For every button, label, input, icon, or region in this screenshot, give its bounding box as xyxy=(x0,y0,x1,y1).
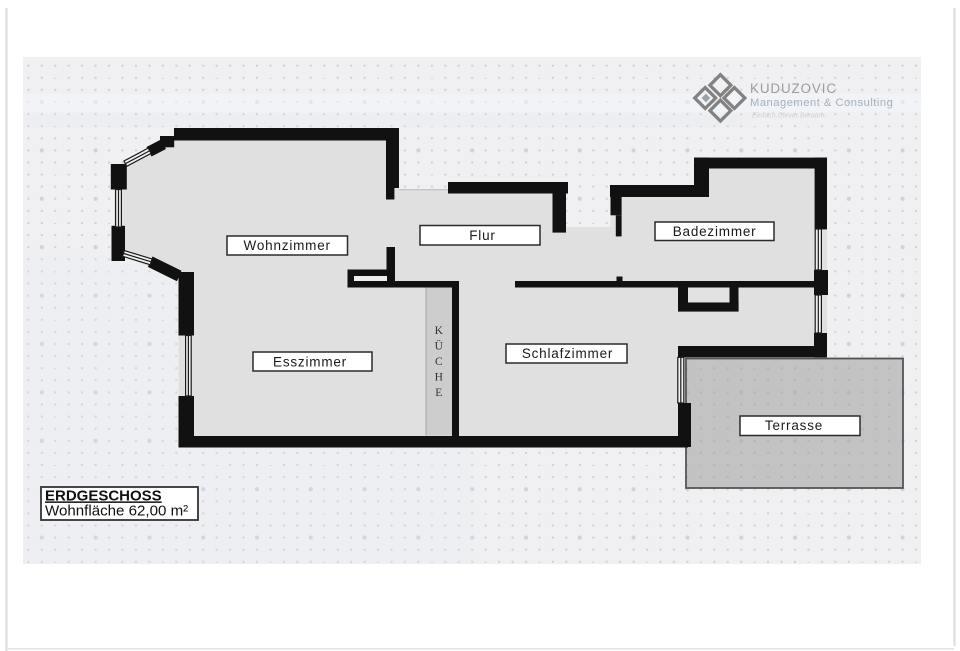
svg-text:Terrasse: Terrasse xyxy=(765,418,823,433)
svg-text:Wohnzimmer: Wohnzimmer xyxy=(244,238,331,253)
svg-text:Schlafzimmer: Schlafzimmer xyxy=(522,346,613,361)
svg-text:Wohnfläche 62,00 m²: Wohnfläche 62,00 m² xyxy=(45,503,188,520)
svg-text:Management & Consulting: Management & Consulting xyxy=(750,97,893,109)
svg-text:K: K xyxy=(435,325,444,337)
svg-text:KUDUZOVIC: KUDUZOVIC xyxy=(750,81,837,96)
svg-text:Ü: Ü xyxy=(435,339,444,353)
svg-text:C: C xyxy=(435,356,443,368)
svg-text:Flur: Flur xyxy=(469,228,495,243)
svg-text:E: E xyxy=(435,387,442,399)
svg-text:Badezimmer: Badezimmer xyxy=(673,224,757,239)
svg-text:Esszimmer: Esszimmer xyxy=(273,354,347,369)
svg-text:H: H xyxy=(435,372,443,384)
svg-text:Einfach.Clever.Beraten.: Einfach.Clever.Beraten. xyxy=(752,112,827,120)
